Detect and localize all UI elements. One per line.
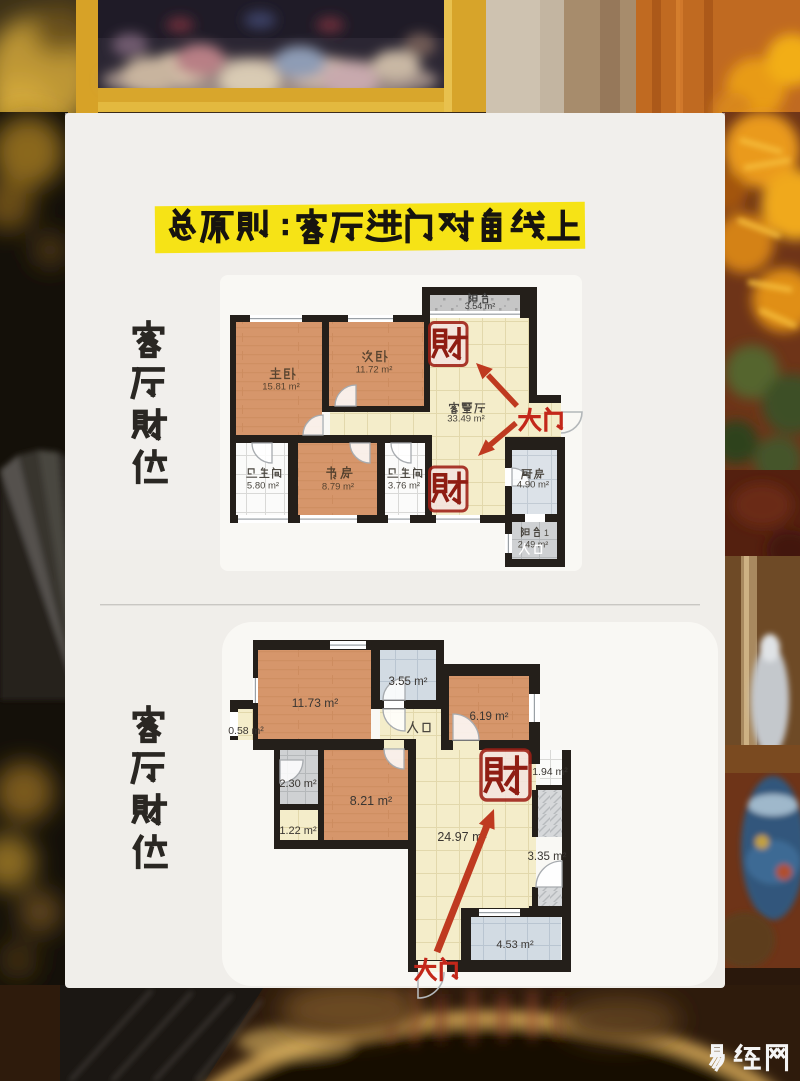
svg-text:3.55 m²: 3.55 m² bbox=[389, 676, 428, 688]
svg-text:5.80 m²: 5.80 m² bbox=[247, 481, 279, 492]
svg-text:11.72 m²: 11.72 m² bbox=[356, 365, 393, 376]
svg-text:33.49 m²: 33.49 m² bbox=[447, 414, 485, 425]
svg-text:8.79 m²: 8.79 m² bbox=[322, 482, 354, 493]
svg-text:1.22 m²: 1.22 m² bbox=[279, 825, 317, 837]
svg-text:4.90 m²: 4.90 m² bbox=[517, 480, 549, 491]
svg-text:3.76 m²: 3.76 m² bbox=[388, 481, 420, 492]
svg-text:1: 1 bbox=[544, 528, 549, 538]
svg-text:8.21 m²: 8.21 m² bbox=[350, 794, 392, 808]
svg-text:15.81 m²: 15.81 m² bbox=[262, 382, 300, 393]
svg-text:0.58 m²: 0.58 m² bbox=[228, 725, 264, 737]
svg-text:2.49 m²: 2.49 m² bbox=[518, 540, 549, 550]
svg-text:2.30 m²: 2.30 m² bbox=[279, 778, 317, 790]
svg-text:3.35 m²: 3.35 m² bbox=[528, 851, 567, 863]
svg-text:1.94 m²: 1.94 m² bbox=[532, 766, 568, 778]
svg-text:11.73 m²: 11.73 m² bbox=[292, 696, 338, 710]
svg-text:6.19 m²: 6.19 m² bbox=[470, 711, 509, 723]
svg-text:4.53 m²: 4.53 m² bbox=[496, 939, 534, 951]
svg-text:3.54 m²: 3.54 m² bbox=[465, 301, 496, 311]
